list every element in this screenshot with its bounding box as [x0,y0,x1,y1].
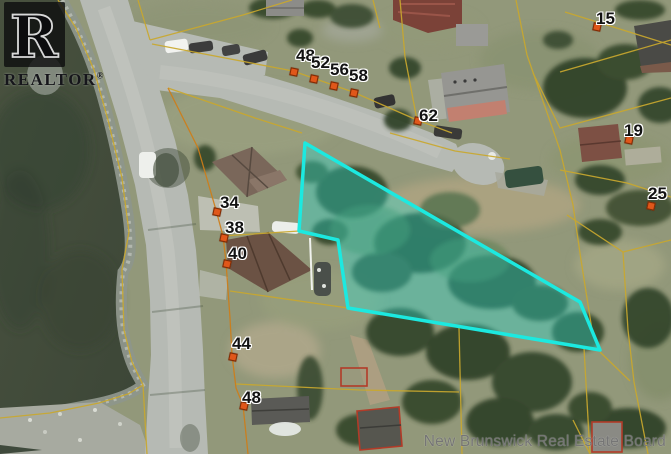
realtor-brand-text: REALTOR [4,70,97,89]
map-viewport[interactable]: 48525658623438404448151925 R REALTOR® Ne… [0,0,671,454]
realtor-logo: R REALTOR® [4,2,114,90]
realtor-wordmark: REALTOR® [4,70,114,90]
lot-corner-marker [646,201,655,210]
lot-corner-marker [212,207,221,216]
realtor-r-letter: R [10,3,59,67]
lot-corner-marker [592,22,601,31]
lot-corner-marker [624,135,633,144]
lot-corner-marker [329,81,338,90]
house-19-roof [578,124,622,162]
lot-corner-marker [239,401,248,410]
lot-corner-marker [222,259,231,268]
lot-corner-marker [219,233,228,242]
registered-trademark-symbol: ® [97,70,104,80]
lot-corner-marker [413,116,422,125]
lot-corner-marker [309,74,318,83]
house-62-roof [441,64,510,122]
lot-corner-marker [228,352,237,361]
watermark: New Brunswick Real Estate Board [424,433,666,452]
lot-corner-marker [349,88,358,97]
lot-corner-marker [289,67,298,76]
realtor-r-icon: R [4,2,65,67]
